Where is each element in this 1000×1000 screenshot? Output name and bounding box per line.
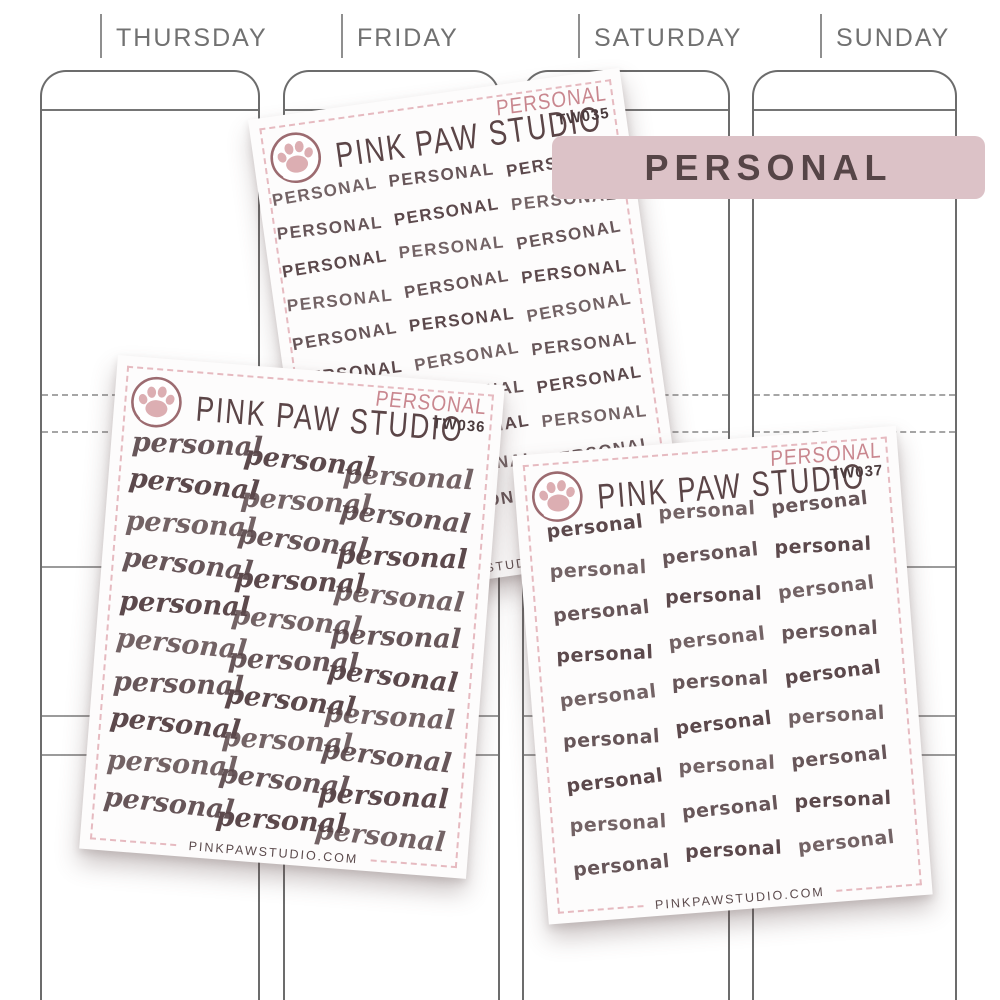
day-divider-line [578, 14, 580, 58]
column-header-line [754, 109, 955, 111]
product-mockup-canvas: THURSDAYFRIDAYSATURDAYSUNDAY PINK PAW ST… [0, 0, 1000, 1000]
day-label-thursday: THURSDAY [116, 24, 268, 53]
sticker-word: personal [315, 618, 476, 655]
day-divider-line [100, 14, 102, 58]
day-label-sunday: SUNDAY [836, 24, 950, 53]
column-header-line [42, 109, 258, 111]
category-banner: PERSONAL [552, 136, 985, 199]
sticker-sheet-tw037: PINK PAW STUDIOPERSONALTW037personalpers… [512, 426, 933, 925]
column-section-line [754, 394, 955, 396]
paw-logo-icon [265, 127, 326, 188]
sticker-sheet-tw036: PINK PAW STUDIOPERSONALTW036personalpers… [79, 355, 505, 879]
day-label-friday: FRIDAY [357, 24, 459, 53]
day-divider-line [820, 14, 822, 58]
day-divider-line [341, 14, 343, 58]
day-label-saturday: SATURDAY [594, 24, 742, 53]
paw-logo-icon [127, 373, 185, 431]
category-banner-text: PERSONAL [644, 147, 892, 189]
